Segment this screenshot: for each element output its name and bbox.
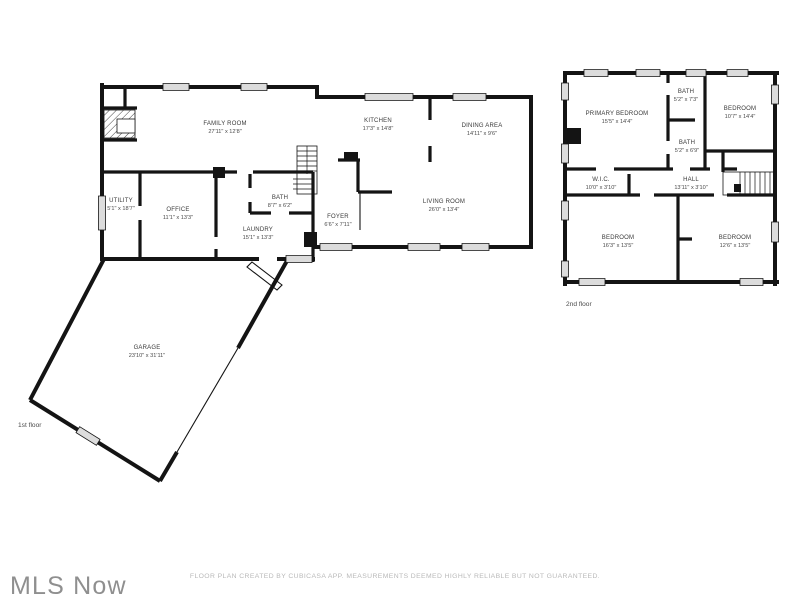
room-dims-foyer: 6'6" x 7'11" [324, 222, 351, 228]
disclaimer-text: FLOOR PLAN CREATED BY CUBICASA APP. MEAS… [190, 573, 600, 580]
room-dims-bedroom-bottom-right: 12'6" x 13'5" [720, 243, 751, 249]
room-dims-wic: 10'0" x 3'10" [586, 185, 617, 191]
room-dims-garage: 23'10" x 31'11" [129, 353, 166, 359]
room-label-bath-top: BATH [678, 89, 694, 95]
garage-window [76, 427, 100, 446]
room-dims-family-room: 27'11" x 12'8" [208, 129, 241, 135]
garage-walls [30, 259, 288, 481]
room-label-utility: UTILITY [109, 198, 133, 204]
first-floor-labels: FAMILY ROOM 27'11" x 12'8" KITCHEN 17'3"… [18, 118, 502, 429]
mls-now-logo: MLS Now [10, 572, 127, 600]
room-label-garage: GARAGE [134, 345, 161, 351]
first-floor-plan [30, 83, 533, 481]
room-label-living-room: LIVING ROOM [423, 199, 465, 205]
room-dims-office: 11'1" x 13'3" [163, 215, 193, 221]
room-label-foyer: FOYER [327, 214, 349, 220]
room-label-bedroom-bottom-left: BEDROOM [602, 235, 634, 241]
room-label-bath: BATH [272, 195, 288, 201]
garage-door-opening [177, 348, 238, 452]
room-dims-bath-bottom: 5'2" x 6'9" [675, 148, 699, 154]
room-dims-bath-top: 5'2" x 7'3" [674, 97, 698, 103]
room-dims-living-room: 26'0" x 13'4" [429, 207, 460, 213]
room-label-family-room: FAMILY ROOM [203, 121, 246, 127]
room-dims-kitchen: 17'3" x 14'8" [363, 126, 394, 132]
room-label-bedroom-bottom-right: BEDROOM [719, 235, 751, 241]
stairs-treads [740, 172, 770, 195]
floor2-stairs [723, 172, 775, 195]
room-label-laundry: LAUNDRY [243, 227, 273, 233]
room-label-wic: W.I.C. [592, 177, 610, 183]
room-dims-dining-area: 14'11" x 9'6" [467, 131, 497, 137]
room-dims-bedroom-right: 10'7" x 14'4" [725, 114, 756, 120]
room-label-kitchen: KITCHEN [364, 118, 392, 124]
room-label-primary-bedroom: PRIMARY BEDROOM [586, 111, 649, 117]
room-label-office: OFFICE [166, 207, 189, 213]
room-label-hall: HALL [683, 177, 699, 183]
fireplace-insert [117, 119, 135, 133]
room-label-dining-area: DINING AREA [462, 123, 503, 129]
room-label-bedroom-right: BEDROOM [724, 106, 756, 112]
room-dims-bedroom-bottom-left: 16'3" x 13'5" [603, 243, 634, 249]
room-dims-primary-bedroom: 15'5" x 14'4" [602, 119, 633, 125]
second-floor-labels: PRIMARY BEDROOM 15'5" x 14'4" BATH 5'2" … [566, 89, 756, 308]
room-label-bath-bottom: BATH [679, 140, 695, 146]
first-floor-caption: 1st floor [18, 422, 42, 429]
room-dims-laundry: 15'1" x 13'3" [243, 235, 274, 241]
second-floor-caption: 2nd floor [566, 301, 592, 308]
stairs-outline [723, 172, 775, 195]
room-dims-bath: 8'7" x 6'2" [268, 203, 292, 209]
room-dims-hall: 13'11" x 3'10" [674, 185, 707, 191]
floor-plan-canvas: FAMILY ROOM 27'11" x 12'8" KITCHEN 17'3"… [0, 0, 800, 600]
room-dims-utility: 5'1" x 18'7" [107, 206, 135, 212]
